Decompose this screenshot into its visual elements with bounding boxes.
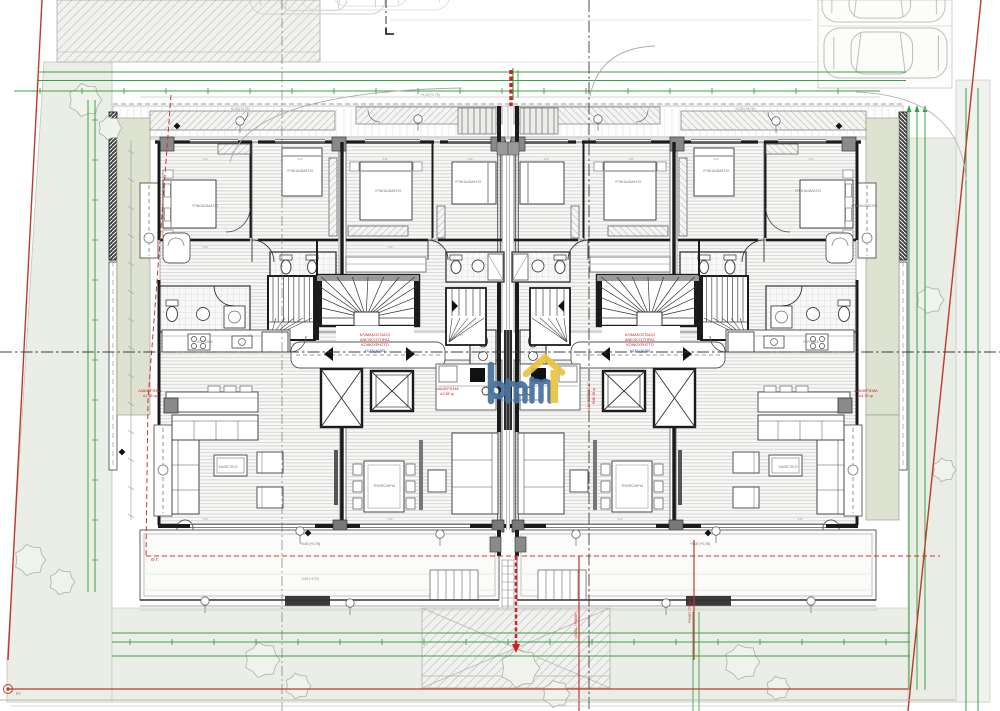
svg-text:ΤΡΑΠΕΖΑΡΙΑ: ΤΡΑΠΕΖΑΡΙΑ (373, 484, 396, 488)
svg-text:3,45: 3,45 (382, 157, 388, 161)
svg-text:Ρ.Γ.: Ρ.Γ. (16, 692, 21, 696)
svg-text:+0,00 (+0,75): +0,00 (+0,75) (300, 542, 320, 546)
svg-text:+0,15 (+0,90): +0,15 (+0,90) (630, 349, 650, 353)
svg-text:ΡΥΜΟΤ. ΓΡΑΜΜΗ: ΡΥΜΟΤ. ΓΡΑΜΜΗ (688, 596, 692, 623)
svg-text:ΑΝΕΛΚΥΣΤΗΡΑΣ: ΑΝΕΛΚΥΣΤΗΡΑΣ (625, 338, 656, 342)
svg-text:ΔΙΑΜΕΡΙΣΜΑ: ΔΙΑΜΕΡΙΣΜΑ (854, 389, 878, 393)
svg-text:ΥΠΝΟΔΩΜΑΤΙΟ: ΥΠΝΟΔΩΜΑΤΙΟ (375, 189, 402, 193)
svg-text:ΚΑΘΙΣΤΙΚΟ: ΚΑΘΙΣΤΙΚΟ (218, 465, 237, 469)
svg-text:Θ.Γ.: Θ.Γ. (151, 557, 159, 562)
svg-text:3,45: 3,45 (202, 157, 208, 161)
svg-text:ΥΠΝΟΔΩΜΑΤΙΟ: ΥΠΝΟΔΩΜΑΤΙΟ (192, 204, 219, 208)
svg-text:3,45: 3,45 (808, 157, 814, 161)
svg-text:3,45: 3,45 (457, 333, 463, 337)
svg-text:Δ2 88 τμ: Δ2 88 τμ (440, 392, 454, 396)
svg-text:ΔΙΑΜΕΡΙΣΜΑ: ΔΙΑΜΕΡΙΣΜΑ (138, 389, 162, 393)
svg-text:ΚΛΙΜΑΚΟΣΤΑΣΙΟ: ΚΛΙΜΑΚΟΣΤΑΣΙΟ (360, 333, 391, 337)
svg-text:real estate development: real estate development (500, 397, 544, 402)
svg-text:+0,00 (+0,75): +0,00 (+0,75) (735, 107, 754, 111)
svg-text:+0,00 (+0,75): +0,00 (+0,75) (230, 107, 249, 111)
svg-text:ΥΠΝΟΔΩΜΑΤΙΟ: ΥΠΝΟΔΩΜΑΤΙΟ (455, 180, 482, 184)
svg-text:ΔΙΑΜΕΡΙΣΜΑ: ΔΙΑΜΕΡΙΣΜΑ (435, 387, 459, 391)
svg-text:3,45: 3,45 (297, 157, 303, 161)
svg-text:ΚΟΥΖΙΝΑ: ΚΟΥΖΙΝΑ (803, 340, 819, 344)
svg-text:ΥΠΝΟΔΩΜΑΤΙΟ: ΥΠΝΟΔΩΜΑΤΙΟ (615, 180, 642, 184)
svg-text:ΤΡΑΠΕΖΑΡΙΑ: ΤΡΑΠΕΖΑΡΙΑ (621, 484, 644, 488)
svg-text:3,45: 3,45 (467, 157, 473, 161)
svg-text:ΚΛΙΜΑΚΟΣΤΑΣΙΟ: ΚΛΙΜΑΚΟΣΤΑΣΙΟ (625, 333, 656, 337)
svg-text:3,45: 3,45 (713, 157, 719, 161)
svg-text:+0,15 (+0,90): +0,15 (+0,90) (365, 349, 385, 353)
svg-text:ΚΟΥΖΙΝΑ: ΚΟΥΖΙΝΑ (197, 340, 213, 344)
svg-text:ΥΠΝΟΔΩΜΑΤΙΟ: ΥΠΝΟΔΩΜΑΤΙΟ (851, 204, 878, 208)
svg-text:3,45: 3,45 (247, 333, 253, 337)
svg-text:ΟΙΚΟΔ. ΓΡΑΜΜΗ: ΟΙΚΟΔ. ΓΡΑΜΜΗ (574, 612, 578, 638)
svg-text:ΚΑΘΙΣΤΙΚΟ: ΚΑΘΙΣΤΙΚΟ (778, 465, 797, 469)
svg-text:ΔΙΑΜΕΡΙΣΜΑ Δ3: ΔΙΑΜΕΡΙΣΜΑ Δ3 (587, 382, 591, 409)
svg-text:3,45: 3,45 (617, 517, 623, 521)
svg-text:+0,00 (+0,75): +0,00 (+0,75) (690, 542, 710, 546)
svg-text:3,45: 3,45 (797, 517, 803, 521)
svg-text:ΕΜΒ. 88 τμ: ΕΜΒ. 88 τμ (592, 388, 596, 404)
svg-text:3,45: 3,45 (387, 517, 393, 521)
svg-text:Δ4 95 τμ: Δ4 95 τμ (859, 394, 873, 398)
svg-text:3,45: 3,45 (387, 245, 393, 249)
svg-text:3,45: 3,45 (202, 517, 208, 521)
svg-text:ΥΠΝΟΔΩΜΑΤΙΟ: ΥΠΝΟΔΩΜΑΤΙΟ (795, 189, 822, 193)
svg-text:Δ1 95 τμ: Δ1 95 τμ (143, 394, 157, 398)
svg-text:3,45: 3,45 (543, 157, 549, 161)
svg-text:ΑΝΕΛΚΥΣΤΗΡΑΣ: ΑΝΕΛΚΥΣΤΗΡΑΣ (360, 338, 391, 342)
svg-text:-0,05 (+0,70): -0,05 (+0,70) (301, 577, 319, 581)
svg-text:ΥΠΝΟΔΩΜΑΤΙΟ: ΥΠΝΟΔΩΜΑΤΙΟ (703, 169, 730, 173)
svg-text:+0,00 (+0,75): +0,00 (+0,75) (420, 93, 439, 97)
svg-text:ΥΠΝΟΔΩΜΑΤΙΟ: ΥΠΝΟΔΩΜΑΤΙΟ (287, 169, 314, 173)
svg-text:3,45: 3,45 (628, 157, 634, 161)
svg-text:ΚΟΙΝΟΧΡΗΣΤΟ: ΚΟΙΝΟΧΡΗΣΤΟ (626, 343, 654, 347)
svg-text:3,45: 3,45 (202, 245, 208, 249)
svg-text:ΚΟΙΝΟΧΡΗΣΤΟ: ΚΟΙΝΟΧΡΗΣΤΟ (361, 343, 389, 347)
